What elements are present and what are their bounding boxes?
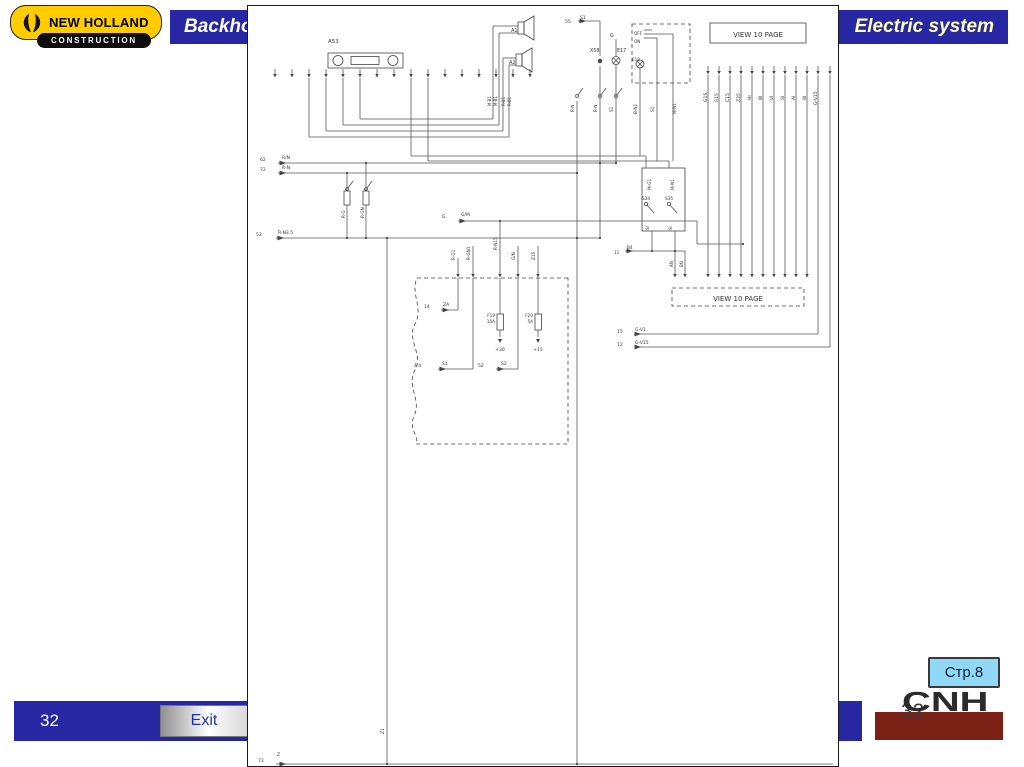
wire-code-label: M-B1: [493, 96, 498, 106]
label: G-V1: [635, 327, 646, 333]
pin-arrow: [805, 274, 808, 278]
slide-number: 32: [40, 711, 59, 731]
wire-arrow: [278, 236, 285, 241]
label: E18: [632, 57, 640, 62]
label: 72: [260, 167, 266, 173]
pin-arrow: [460, 74, 463, 78]
pin-arrow: [528, 74, 531, 78]
junction-dot: [599, 162, 601, 164]
label: A1: [511, 28, 518, 34]
slide-title-left: Backho: [184, 16, 253, 38]
wire-code-label: M-G1: [647, 178, 652, 190]
label: S35: [665, 196, 673, 201]
label: G: [610, 33, 614, 39]
pin-arrow: [456, 274, 459, 278]
pin-arrow: [706, 71, 709, 75]
label: B4: [627, 245, 633, 250]
wire-code-label: SI: [645, 226, 650, 230]
wire-code-label: VI: [769, 96, 775, 100]
pin-arrow: [828, 71, 831, 75]
speaker-horn: [522, 48, 532, 72]
page-ref-badge[interactable]: Стр.8: [928, 657, 1000, 688]
pin-arrow: [717, 71, 720, 75]
wire-arrow: [280, 161, 287, 166]
label: R-N3.5: [278, 230, 293, 236]
wire-arrow: [460, 219, 467, 224]
wire-code-label: R-B1: [507, 96, 512, 106]
pin-arrow: [739, 274, 742, 278]
schematic-page: A53A1A255S1X58GE17OFFONE18VIEW 10 PAGEVI…: [247, 5, 839, 767]
fuse: [363, 191, 369, 205]
wire-code-label: C15: [725, 93, 731, 102]
wire-code-label: SI: [780, 96, 786, 100]
label: F19: [487, 313, 495, 318]
pin-arrow: [728, 274, 731, 278]
label: A2: [509, 60, 516, 66]
junction-dot: [386, 237, 388, 239]
speaker-horn: [524, 16, 534, 40]
wire-code-label: M-N1: [670, 179, 675, 190]
contact-lever: [578, 88, 583, 95]
label: 14: [424, 304, 430, 310]
label: 53: [256, 232, 262, 238]
pin-arrow: [717, 274, 720, 278]
cnh-logo: CNH: [902, 688, 988, 716]
pin-arrow: [750, 274, 753, 278]
junction-dot: [576, 237, 578, 239]
wire-code-label: S1: [650, 106, 655, 112]
pin-arrow: [324, 74, 327, 78]
pin-arrow: [443, 74, 446, 78]
label: 15: [617, 329, 623, 335]
new-holland-logo: NEW HOLLAND CONSTRUCTION: [10, 5, 164, 49]
brand-division: CONSTRUCTION: [37, 33, 151, 48]
label: 52: [478, 363, 484, 369]
wire-code-label: R15: [714, 93, 720, 102]
label: 5A: [527, 319, 533, 324]
fuse: [344, 191, 350, 205]
label: VIEW 10 PAGE: [713, 295, 763, 303]
label: ON: [634, 39, 640, 44]
label: G/M: [461, 212, 470, 218]
pin-arrow: [783, 274, 786, 278]
wire-code-label: G-V15: [813, 91, 819, 105]
label: +15: [533, 347, 543, 353]
wire-code-label: Z15: [531, 251, 536, 260]
wire-code-label: BI: [802, 96, 808, 100]
pin-arrow: [794, 274, 797, 278]
wire-code-label: B-N1: [633, 103, 638, 114]
label: 62: [260, 157, 266, 163]
wire-code-label: M-N1: [672, 103, 677, 114]
pin-arrow: [706, 274, 709, 278]
pin-arrow: [673, 274, 676, 278]
label: VIEW 10 PAGE: [733, 31, 783, 39]
pin-arrow: [498, 274, 501, 278]
pin-arrow: [426, 74, 429, 78]
label: R-N: [282, 165, 290, 171]
pin-arrow: [477, 74, 480, 78]
pin-arrow: [536, 274, 539, 278]
pin-arrow: [511, 74, 514, 78]
junction-dot: [576, 172, 578, 174]
pin-arrow: [494, 74, 497, 78]
label: 4.4: [414, 363, 421, 369]
pin-arrow: [471, 274, 474, 278]
speaker-icon: [516, 54, 522, 66]
fuse: [535, 314, 542, 330]
contact-lever: [601, 88, 606, 95]
speaker-icon: [518, 22, 524, 34]
label: 55: [565, 19, 571, 25]
pin-arrow: [750, 71, 753, 75]
radio-slot: [351, 57, 379, 65]
wire-code-label: M-B1: [487, 96, 492, 106]
junction-dot: [615, 162, 617, 164]
junction-dot: [346, 237, 348, 239]
switch-lever: [670, 205, 677, 213]
label: OFF: [634, 31, 643, 36]
wire-code-label: R-N15: [493, 237, 498, 250]
wire-arrow: [280, 762, 287, 766]
pin-arrow: [409, 74, 412, 78]
brand-name: NEW HOLLAND: [49, 15, 149, 30]
junction-dot: [499, 220, 501, 222]
pin-arrow: [783, 71, 786, 75]
label: S1: [580, 15, 586, 21]
pin-arrow: [761, 71, 764, 75]
pin-arrow: [772, 274, 775, 278]
pin-arrow: [805, 71, 808, 75]
label: 11: [614, 250, 620, 255]
label: F20: [525, 313, 533, 318]
junction-dot: [599, 237, 601, 239]
contact: [576, 95, 579, 98]
label: E17: [617, 48, 626, 54]
label: R/N: [282, 155, 290, 161]
junction-dot: [346, 172, 348, 174]
label: G: [442, 214, 446, 220]
leaf-icon: [19, 11, 45, 35]
junction-dot: [386, 763, 388, 765]
wire-code-label: R-GN1: [466, 246, 471, 260]
pin-arrow: [739, 71, 742, 75]
contact-lever: [367, 181, 372, 188]
wire-code-label: R-G1: [451, 249, 456, 260]
pin-arrow: [683, 274, 686, 278]
wire-arrow: [280, 171, 287, 176]
wire-code-label: HI: [747, 95, 753, 100]
pin-arrow: [794, 71, 797, 75]
junction-dot: [674, 250, 676, 252]
label: X58: [590, 48, 599, 54]
pin-arrow: [358, 74, 361, 78]
connector-x58: [598, 59, 602, 63]
wire-arrow: [443, 308, 450, 313]
label: +30: [495, 347, 505, 353]
wire-arrow: [498, 367, 505, 372]
junction-dot: [742, 243, 744, 245]
label: S34: [642, 196, 650, 201]
wire-code-label: BN: [679, 261, 684, 267]
pin-arrow: [816, 71, 819, 75]
wire-arrow: [440, 367, 447, 372]
wire-code-label: R-B1: [501, 96, 506, 106]
label: G-V15: [635, 340, 649, 346]
fuse: [497, 314, 504, 330]
pin-arrow: [772, 71, 775, 75]
pin-arrow: [273, 74, 276, 78]
exit-button[interactable]: Exit: [160, 705, 248, 737]
wire-code-label: R-G: [341, 210, 346, 218]
wire-code-label: R-N: [570, 105, 575, 112]
wire-code-label: R-GN: [360, 207, 365, 218]
junction-dot: [365, 237, 367, 239]
pin-arrow: [307, 74, 310, 78]
pin-arrow: [761, 274, 764, 278]
switch-lever: [647, 205, 654, 213]
pin-arrow: [290, 74, 293, 78]
label: 12: [617, 342, 623, 348]
radio-knob: [388, 56, 398, 66]
dashed-region: [412, 278, 568, 444]
wire-code-label: R-N: [593, 105, 598, 112]
wire-code-label: BI: [758, 96, 764, 100]
label: 73: [258, 758, 264, 764]
pin-arrow: [516, 274, 519, 278]
wire-code-label: G/N: [511, 252, 516, 260]
label: ZA: [443, 302, 450, 308]
wire-code-label: AN: [669, 261, 674, 267]
pin-arrow: [728, 71, 731, 75]
terminal-arrow: [498, 339, 502, 343]
contact-lever: [617, 88, 622, 95]
label: A53: [328, 39, 339, 45]
wire-code-label: Z25: [736, 93, 742, 102]
wire-code-label: S1: [609, 106, 614, 112]
contact-lever: [348, 181, 353, 188]
label: Z: [277, 752, 280, 758]
slide-title-right: Electric system: [855, 16, 994, 38]
schematic-svg: A53A1A255S1X58GE17OFFONE18VIEW 10 PAGEVI…: [248, 6, 838, 766]
junction-dot: [365, 162, 367, 164]
label: S1: [442, 361, 448, 367]
wire-code-label: SI: [668, 226, 673, 230]
radio-knob: [333, 56, 343, 66]
wire-code-label: G15: [703, 93, 709, 102]
junction-dot: [576, 763, 578, 765]
wire-code-label: AI: [791, 96, 797, 100]
pin-arrow: [341, 74, 344, 78]
wire-code-label: Z1: [380, 728, 385, 734]
pin-arrow: [375, 74, 378, 78]
label: S2: [501, 361, 507, 367]
junction-dot: [651, 250, 653, 252]
pin-arrow: [392, 74, 395, 78]
label: 10A: [487, 319, 495, 324]
terminal-arrow: [536, 339, 540, 343]
